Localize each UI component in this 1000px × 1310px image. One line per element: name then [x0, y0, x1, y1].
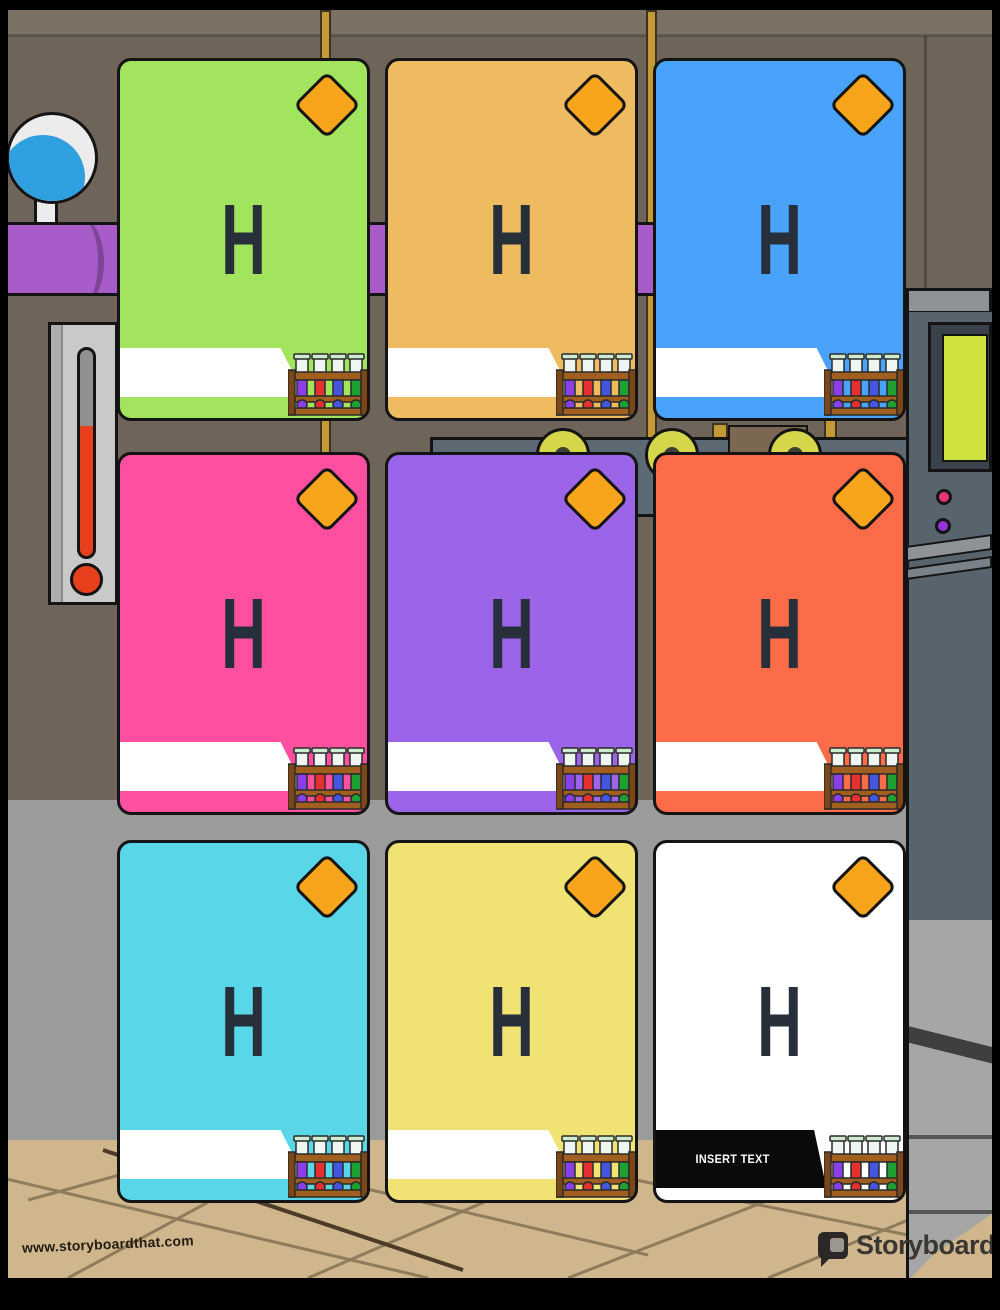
test-tube-rack-icon: [288, 352, 368, 416]
frame-border: [0, 0, 8, 1310]
thermometer-panel-edge: [51, 325, 63, 602]
thermometer-panel: [48, 322, 118, 605]
banner-placeholder-text[interactable]: [128, 742, 266, 791]
machine-top-cap: [906, 288, 992, 314]
flashcard-5[interactable]: H: [385, 452, 638, 815]
test-tube-rack-icon: [556, 1134, 636, 1198]
card-letter: H: [167, 970, 320, 1074]
flashcard-3[interactable]: H: [653, 58, 906, 421]
diamond-icon: [829, 465, 897, 533]
purple-pipe-joint: [60, 222, 104, 296]
card-letter: H: [435, 188, 588, 292]
diamond-icon: [293, 853, 361, 921]
diamond-icon: [829, 853, 897, 921]
card-letter: H: [703, 188, 856, 292]
flask-liquid: [6, 135, 85, 204]
banner-placeholder-text[interactable]: [664, 742, 802, 791]
flashcard-1[interactable]: H: [117, 58, 370, 421]
test-tube-rack-icon: [824, 352, 904, 416]
flashcard-8[interactable]: H: [385, 840, 638, 1203]
flashcard-6[interactable]: H: [653, 452, 906, 815]
brand-primary: Storyboard: [856, 1230, 995, 1260]
flashcard-2[interactable]: H: [385, 58, 638, 421]
speech-bubble-logo-icon: [818, 1232, 848, 1259]
card-letter: H: [167, 188, 320, 292]
thermometer-icon: [77, 347, 96, 559]
diamond-icon: [561, 853, 629, 921]
test-tube-rack-icon: [824, 746, 904, 810]
round-flask-icon: [6, 112, 98, 204]
banner-placeholder-text[interactable]: [396, 742, 534, 791]
diamond-icon: [293, 71, 361, 139]
stair-step-line: [909, 1135, 992, 1139]
machine-button-pink: [936, 489, 952, 505]
flashcard-7[interactable]: H: [117, 840, 370, 1203]
banner-placeholder-text[interactable]: INSERT TEXT: [664, 1130, 802, 1188]
thermometer-bulb: [70, 563, 103, 596]
card-letter: H: [435, 582, 588, 686]
diamond-icon: [561, 71, 629, 139]
brand-logo: StoryboardThat: [818, 1230, 1000, 1261]
test-tube-rack-icon: [288, 746, 368, 810]
frame-border: [0, 0, 1000, 10]
flashcard-9[interactable]: INSERT TEXT: [653, 840, 906, 1203]
stair-step-line: [909, 1210, 992, 1214]
brand-logo-text: StoryboardThat: [856, 1230, 1000, 1261]
flashcard-4[interactable]: H: [117, 452, 370, 815]
banner-placeholder-text[interactable]: [128, 348, 266, 397]
machine-button-purple: [935, 518, 951, 534]
test-tube-rack-icon: [556, 746, 636, 810]
wall-seam-line: [924, 36, 927, 290]
frame-border: [0, 1278, 1000, 1310]
banner-placeholder-text[interactable]: [396, 1130, 534, 1179]
wall-top-line: [8, 34, 992, 37]
test-tube-rack-icon: [824, 1134, 904, 1198]
banner-placeholder-text[interactable]: [396, 348, 534, 397]
test-tube-rack-icon: [288, 1134, 368, 1198]
wall-top-band: [8, 10, 992, 36]
card-letter: H: [435, 970, 588, 1074]
card-letter: H: [703, 582, 856, 686]
worksheet-canvas: H: [0, 0, 1000, 1310]
stair-wall: [906, 920, 992, 1280]
diamond-icon: [561, 465, 629, 533]
monitor-screen: [942, 334, 988, 462]
frame-border: [992, 0, 1000, 1310]
card-letter: H: [703, 970, 856, 1074]
diamond-icon: [829, 71, 897, 139]
banner-placeholder-text[interactable]: [664, 348, 802, 397]
stair-railing: [906, 1024, 992, 1069]
test-tube-rack-icon: [556, 352, 636, 416]
diamond-icon: [293, 465, 361, 533]
banner-placeholder-text[interactable]: [128, 1130, 266, 1179]
card-letter: H: [167, 582, 320, 686]
